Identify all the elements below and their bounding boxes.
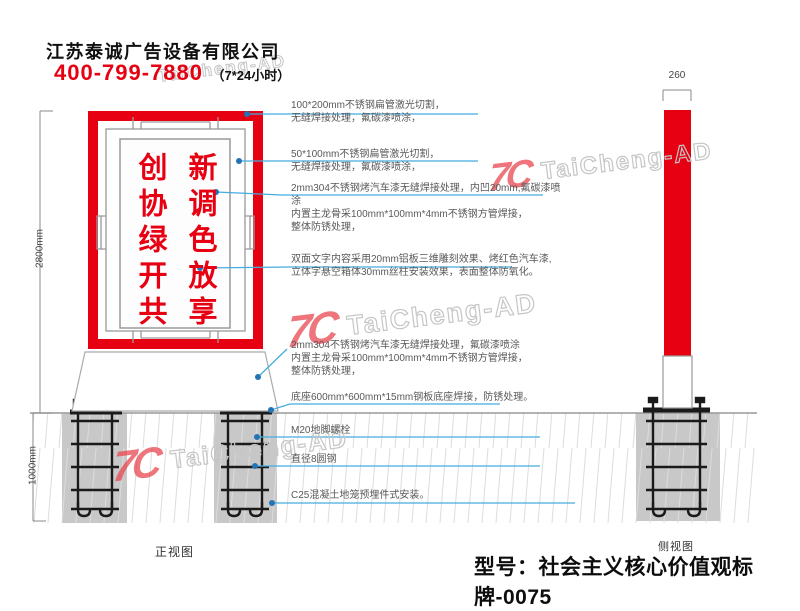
anchor-bolt (649, 398, 657, 402)
dimension-label-1000: 1000mm (28, 436, 39, 496)
anchor-bolt (696, 398, 704, 402)
technical-drawing-page: { "header": { "company": "江苏泰诚广告设备有限公司",… (0, 0, 800, 600)
sign-text-column-left: 创协绿开共 (134, 152, 166, 332)
company-contact: 400-799-7880 （7*24小时） (54, 60, 290, 86)
model-number: 型号：社会主义核心价值观标牌-0075 (474, 551, 800, 611)
annotation-concrete: C25混凝土地笼预埋件式安装。 (291, 489, 563, 502)
sign-text-column-right: 新调色放享 (184, 152, 216, 332)
dimension-label-260: 260 (663, 70, 691, 81)
dimension-label-2800: 2800mm (35, 219, 46, 279)
annotation-base-body: 2mm304不锈钢烤汽车漆无缝焊接处理，氟碳漆喷涂 内置主龙骨采100mm*10… (291, 339, 563, 378)
annotation-top-tube: 100*200mm不锈钢扁管激光切割， 无缝焊接处理，氟碳漆喷涂， (291, 99, 563, 125)
annotation-inner-tube: 50*100mm不锈钢扁管激光切割， 无缝焊接处理，氟碳漆喷涂， (291, 148, 563, 174)
drawing-canvas (0, 0, 800, 600)
service-hours: （7*24小时） (211, 68, 290, 83)
side-view-sign (663, 110, 692, 408)
side-base (663, 356, 692, 408)
front-view-label: 正视图 (155, 543, 194, 560)
front-view-sign (93, 116, 258, 344)
annotation-round-steel: 直径8圆钢 (291, 453, 563, 466)
annotation-anchor-bolt: M20地脚螺栓 (291, 424, 563, 437)
sign-base-front (72, 352, 278, 411)
dim-260 (663, 90, 691, 101)
side-pole (664, 110, 691, 356)
annotation-box-body: 2mm304不锈钢烤汽车漆无缝焊接处理，内凹20mm,氟碳漆喷涂 内置主龙骨采1… (291, 182, 563, 234)
annotation-lettering: 双面文字内容采用20mm铝板三维雕刻效果、烤红色汽车漆, 立体字悬空箱体30mm… (291, 253, 563, 279)
annotation-base-plate: 底座600mm*600mm*15mm钢板底座焊接，防锈处理。 (291, 391, 563, 404)
phone-number: 400-799-7880 (54, 60, 203, 85)
